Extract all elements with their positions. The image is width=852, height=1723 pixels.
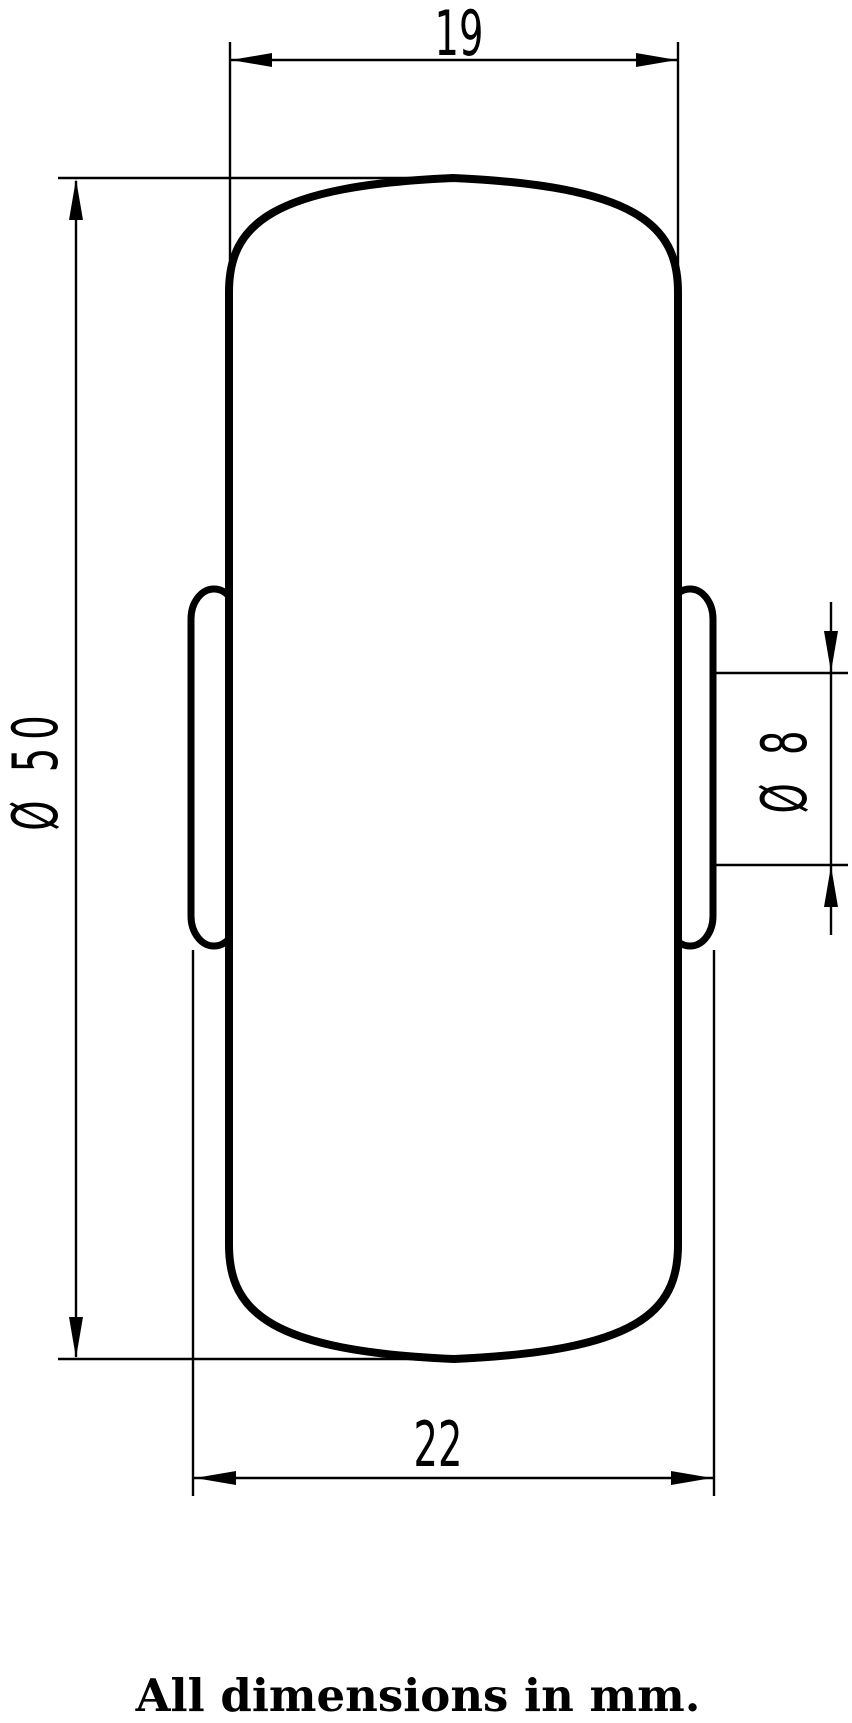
units-note: All dimensions in mm.	[135, 1669, 701, 1722]
dia50-label: Ø 50	[1, 707, 73, 831]
dia50-arrow-down-icon	[69, 1317, 83, 1358]
width19-label: 19	[435, 0, 484, 71]
width19-arrow-left-icon	[231, 53, 272, 67]
bore8-arrow-down-icon	[824, 631, 838, 672]
bore8-arrow-up-icon	[824, 866, 838, 907]
width19-arrow-right-icon	[636, 53, 677, 67]
width22-arrow-left-icon	[195, 1471, 236, 1485]
wheel-body-outline	[229, 178, 678, 1359]
width22-arrow-right-icon	[671, 1471, 712, 1485]
width22-label: 22	[414, 1410, 463, 1482]
engineering-drawing-page: Ø 50 19 22 Ø 8	[0, 0, 852, 1723]
dimension-bore-diameter: Ø 8	[714, 602, 848, 935]
dia50-arrow-up-icon	[69, 179, 83, 220]
drawing-canvas: Ø 50 19 22 Ø 8	[0, 0, 852, 1723]
bore8-label: Ø 8	[750, 722, 822, 813]
